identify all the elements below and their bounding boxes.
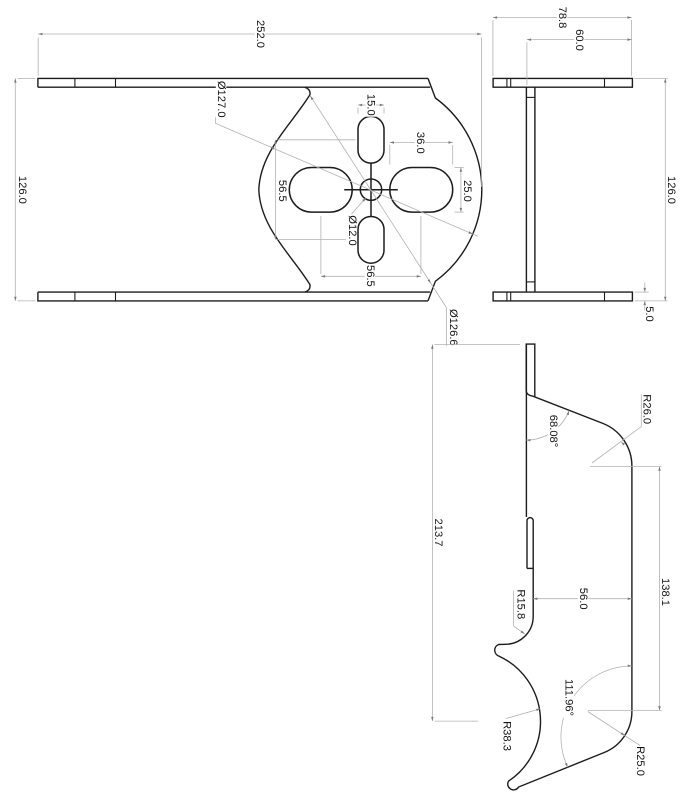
svg-text:252.0: 252.0 xyxy=(254,20,266,48)
svg-text:60.0: 60.0 xyxy=(573,29,585,51)
svg-text:Ø12.0: Ø12.0 xyxy=(346,215,358,245)
svg-text:5.0: 5.0 xyxy=(643,306,655,322)
svg-text:R26.0: R26.0 xyxy=(641,394,653,424)
svg-text:126.0: 126.0 xyxy=(16,176,28,204)
svg-text:78.8: 78.8 xyxy=(556,7,568,29)
svg-text:213.7: 213.7 xyxy=(432,519,444,547)
svg-text:Ø126.6: Ø126.6 xyxy=(447,309,459,346)
svg-text:56.0: 56.0 xyxy=(577,588,589,610)
svg-text:56.5: 56.5 xyxy=(364,265,376,287)
svg-text:138.1: 138.1 xyxy=(659,578,671,606)
svg-text:25.0: 25.0 xyxy=(461,180,473,202)
svg-text:111.96°: 111.96° xyxy=(563,679,575,716)
svg-text:Ø127.0: Ø127.0 xyxy=(215,81,227,118)
svg-text:126.0: 126.0 xyxy=(665,176,677,204)
svg-text:R38.3: R38.3 xyxy=(501,721,513,751)
svg-text:56.5: 56.5 xyxy=(276,180,288,202)
svg-text:R25.0: R25.0 xyxy=(634,746,646,776)
svg-text:68.08°: 68.08° xyxy=(547,415,559,447)
svg-text:R15.8: R15.8 xyxy=(515,589,527,619)
svg-text:36.0: 36.0 xyxy=(414,132,426,154)
svg-text:15.0: 15.0 xyxy=(365,94,377,116)
